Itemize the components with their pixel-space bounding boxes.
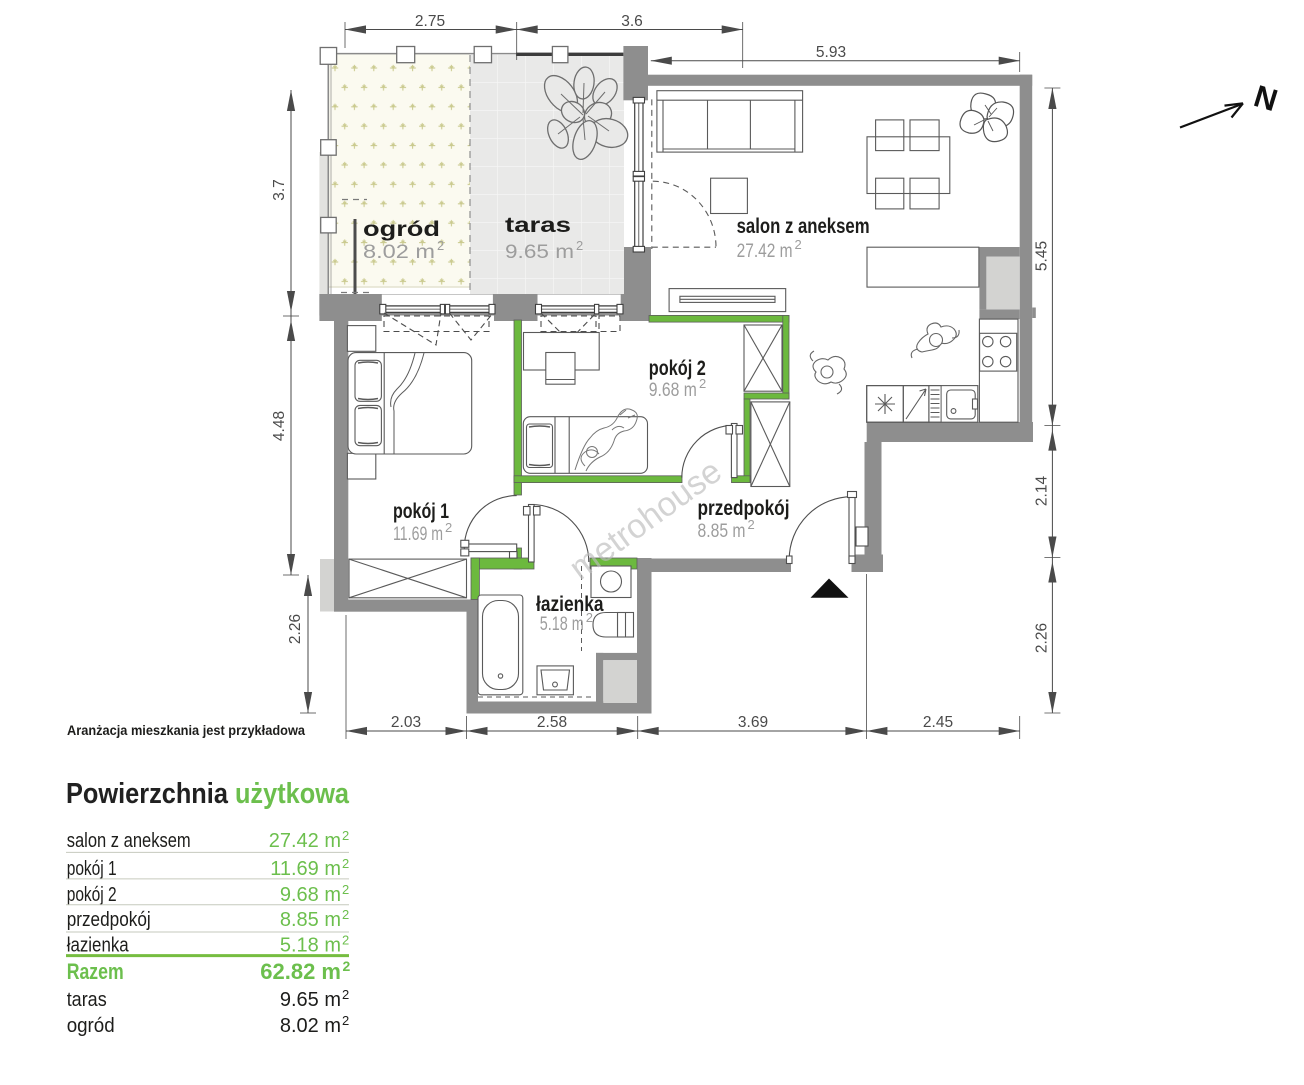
svg-text:2.26: 2.26	[287, 614, 304, 644]
svg-text:łazienka: łazienka	[536, 593, 604, 616]
svg-text:2: 2	[445, 520, 452, 535]
svg-text:2.03: 2.03	[391, 714, 421, 731]
svg-text:salon z aneksem: salon z aneksem	[737, 215, 870, 238]
svg-text:2: 2	[437, 238, 444, 253]
svg-text:przedpokój: przedpokój	[698, 497, 790, 520]
svg-text:przedpokój: przedpokój	[67, 909, 151, 931]
svg-text:2: 2	[342, 1013, 349, 1028]
svg-text:5.18 m: 5.18 m	[280, 935, 341, 957]
svg-text:2.58: 2.58	[537, 714, 567, 731]
svg-text:11.69 m: 11.69 m	[270, 858, 341, 880]
svg-text:27.42 m: 27.42 m	[269, 830, 341, 852]
svg-text:ogród: ogród	[67, 1015, 115, 1037]
svg-text:Razem: Razem	[67, 959, 124, 984]
svg-text:11.69 m: 11.69 m	[393, 524, 443, 545]
svg-text:taras: taras	[505, 214, 571, 237]
svg-text:8.02 m: 8.02 m	[280, 1015, 341, 1037]
svg-text:9.65 m: 9.65 m	[280, 989, 341, 1011]
svg-text:3.69: 3.69	[738, 714, 768, 731]
svg-text:2: 2	[699, 376, 706, 391]
svg-text:9.68 m: 9.68 m	[649, 380, 697, 401]
svg-text:2.45: 2.45	[923, 714, 953, 731]
svg-text:2: 2	[342, 987, 349, 1002]
svg-text:3.7: 3.7	[271, 179, 288, 201]
svg-text:3.6: 3.6	[621, 13, 643, 30]
svg-text:pokój 2: pokój 2	[67, 884, 117, 906]
svg-text:8.02 m: 8.02 m	[363, 242, 435, 263]
svg-text:taras: taras	[67, 989, 107, 1011]
svg-text:2: 2	[795, 237, 802, 252]
svg-text:2.14: 2.14	[1034, 476, 1051, 507]
svg-text:2: 2	[342, 933, 349, 948]
svg-text:pokój 2: pokój 2	[649, 357, 706, 380]
svg-text:62.82 m: 62.82 m	[260, 959, 341, 984]
svg-text:pokój 1: pokój 1	[393, 500, 449, 523]
svg-text:9.68 m: 9.68 m	[280, 884, 341, 906]
svg-text:8.85 m: 8.85 m	[280, 909, 341, 931]
svg-text:pokój 1: pokój 1	[67, 858, 117, 880]
svg-text:4.48: 4.48	[271, 411, 288, 441]
svg-text:2: 2	[586, 610, 593, 625]
svg-text:2: 2	[342, 856, 349, 871]
svg-text:2.75: 2.75	[415, 13, 445, 30]
svg-text:9.65 m: 9.65 m	[505, 242, 574, 263]
svg-text:27.42 m: 27.42 m	[737, 241, 793, 262]
svg-text:2: 2	[342, 828, 349, 843]
svg-text:salon z aneksem: salon z aneksem	[67, 830, 191, 852]
svg-text:8.85 m: 8.85 m	[698, 521, 746, 542]
svg-text:5.93: 5.93	[816, 44, 846, 61]
svg-text:2.26: 2.26	[1034, 623, 1051, 653]
svg-text:Aranżacja mieszkania jest przy: Aranżacja mieszkania jest przykładowa	[67, 723, 305, 738]
svg-text:2: 2	[342, 907, 349, 922]
svg-text:2: 2	[748, 517, 755, 532]
svg-text:2: 2	[576, 238, 583, 253]
svg-text:ogród: ogród	[363, 218, 440, 241]
svg-text:2: 2	[342, 882, 349, 897]
svg-text:łazienka: łazienka	[67, 935, 130, 957]
svg-text:5.45: 5.45	[1034, 241, 1051, 271]
svg-text:5.18 m: 5.18 m	[540, 614, 584, 635]
svg-text:2: 2	[343, 958, 351, 974]
svg-text:Powierzchnia użytkowa: Powierzchnia użytkowa	[66, 778, 350, 810]
